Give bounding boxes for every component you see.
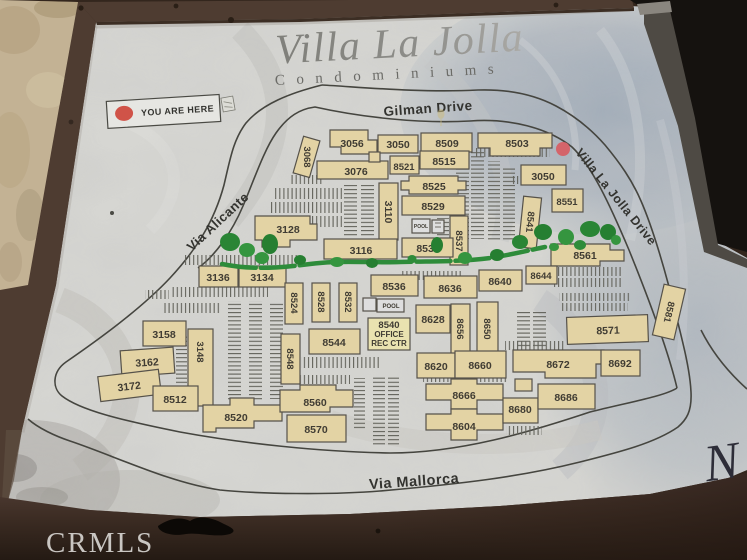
svg-text:3148: 3148 <box>194 341 205 362</box>
svg-text:3076: 3076 <box>344 166 368 178</box>
svg-text:8686: 8686 <box>554 392 578 404</box>
svg-text:8525: 8525 <box>422 181 446 193</box>
svg-text:8528: 8528 <box>315 291 326 312</box>
svg-text:8604: 8604 <box>452 421 476 433</box>
svg-text:3116: 3116 <box>350 245 373 257</box>
svg-text:REC CTR: REC CTR <box>371 339 407 348</box>
svg-text:8672: 8672 <box>546 359 570 371</box>
svg-text:8620: 8620 <box>424 361 448 373</box>
svg-text:3056: 3056 <box>340 138 364 150</box>
svg-text:8640: 8640 <box>488 276 512 288</box>
svg-text:8571: 8571 <box>596 325 620 338</box>
svg-text:8520: 8520 <box>224 412 248 424</box>
svg-text:8548: 8548 <box>284 348 295 369</box>
svg-text:8529: 8529 <box>421 201 445 213</box>
svg-text:8560: 8560 <box>303 397 327 409</box>
svg-text:8503: 8503 <box>505 138 529 150</box>
svg-text:CRMLS: CRMLS <box>46 527 154 559</box>
svg-text:3110: 3110 <box>382 201 394 224</box>
svg-text:8666: 8666 <box>452 390 476 402</box>
svg-text:8636: 8636 <box>438 283 462 295</box>
svg-text:8524: 8524 <box>288 292 299 314</box>
svg-text:3128: 3128 <box>276 224 300 236</box>
svg-text:3136: 3136 <box>206 272 230 284</box>
svg-text:8521: 8521 <box>393 162 415 173</box>
svg-text:8561: 8561 <box>573 250 597 262</box>
svg-text:8544: 8544 <box>322 337 346 349</box>
svg-text:8692: 8692 <box>608 358 632 370</box>
svg-text:3050: 3050 <box>386 139 410 151</box>
svg-text:3158: 3158 <box>152 329 176 341</box>
svg-text:8644: 8644 <box>530 271 552 282</box>
svg-text:POOL: POOL <box>382 304 399 310</box>
svg-text:8650: 8650 <box>481 318 492 339</box>
svg-text:8660: 8660 <box>468 360 492 372</box>
svg-text:8515: 8515 <box>432 156 456 168</box>
svg-text:3134: 3134 <box>250 272 274 284</box>
svg-text:8512: 8512 <box>163 394 187 406</box>
svg-text:8551: 8551 <box>556 197 578 208</box>
svg-text:8628: 8628 <box>421 314 445 326</box>
svg-text:3050: 3050 <box>531 171 555 183</box>
svg-text:8537: 8537 <box>453 230 464 251</box>
svg-text:3068: 3068 <box>301 146 312 167</box>
svg-text:3162: 3162 <box>135 356 159 370</box>
svg-text:8656: 8656 <box>454 318 465 339</box>
svg-text:OFFICE: OFFICE <box>374 330 404 339</box>
svg-text:8541: 8541 <box>523 211 536 234</box>
svg-text:8680: 8680 <box>508 404 532 416</box>
svg-text:8570: 8570 <box>304 424 328 436</box>
svg-text:8509: 8509 <box>435 138 459 150</box>
svg-text:8536: 8536 <box>382 281 406 293</box>
svg-text:POOL: POOL <box>414 224 428 230</box>
svg-text:8532: 8532 <box>342 291 353 312</box>
